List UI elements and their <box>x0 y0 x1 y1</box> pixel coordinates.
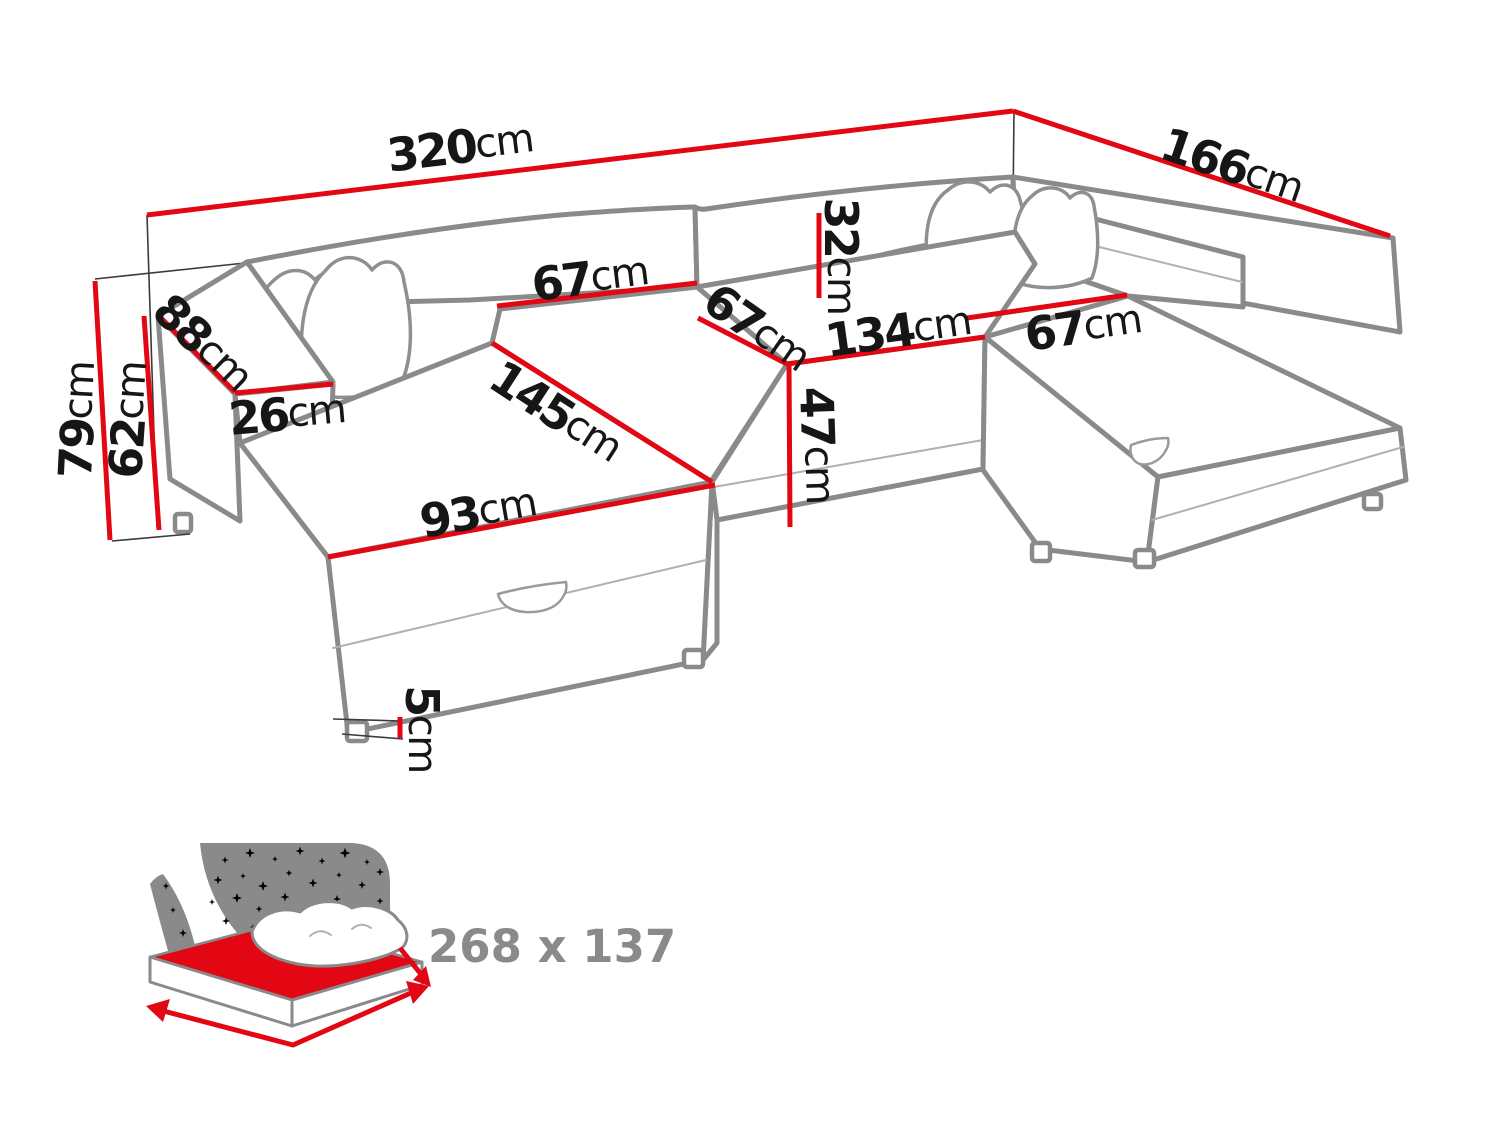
sofa-drawing <box>158 177 1406 741</box>
sofa-leg <box>1364 494 1381 509</box>
diagram-canvas: 320cm 166cm 79cm 62cm 88cm 26cm 67cm 67c… <box>0 0 1500 1125</box>
dimension-label-seat-height: 47cm <box>789 386 847 505</box>
sofa-leg <box>1032 543 1050 561</box>
sleeping-function-icon <box>146 843 431 1045</box>
dimension-label-total-depth: 166cm <box>1154 117 1310 216</box>
sofa-leg <box>175 514 191 532</box>
sofa-dimension-diagram: 320cm 166cm 79cm 62cm 88cm 26cm 67cm 67c… <box>0 0 1500 1125</box>
guide-line <box>112 534 190 541</box>
dimension-label-armrest-height: 62cm <box>98 360 160 480</box>
sofa-leg <box>347 722 367 741</box>
dimension-label-backrest-height: 32cm <box>814 198 868 315</box>
dimension-label-leg-height: 5cm <box>395 685 449 772</box>
bed-size-label: 268 x 137 <box>428 920 676 973</box>
arrowhead-left <box>146 999 170 1022</box>
sofa-leg <box>1135 550 1154 567</box>
sofa-leg <box>684 650 703 667</box>
